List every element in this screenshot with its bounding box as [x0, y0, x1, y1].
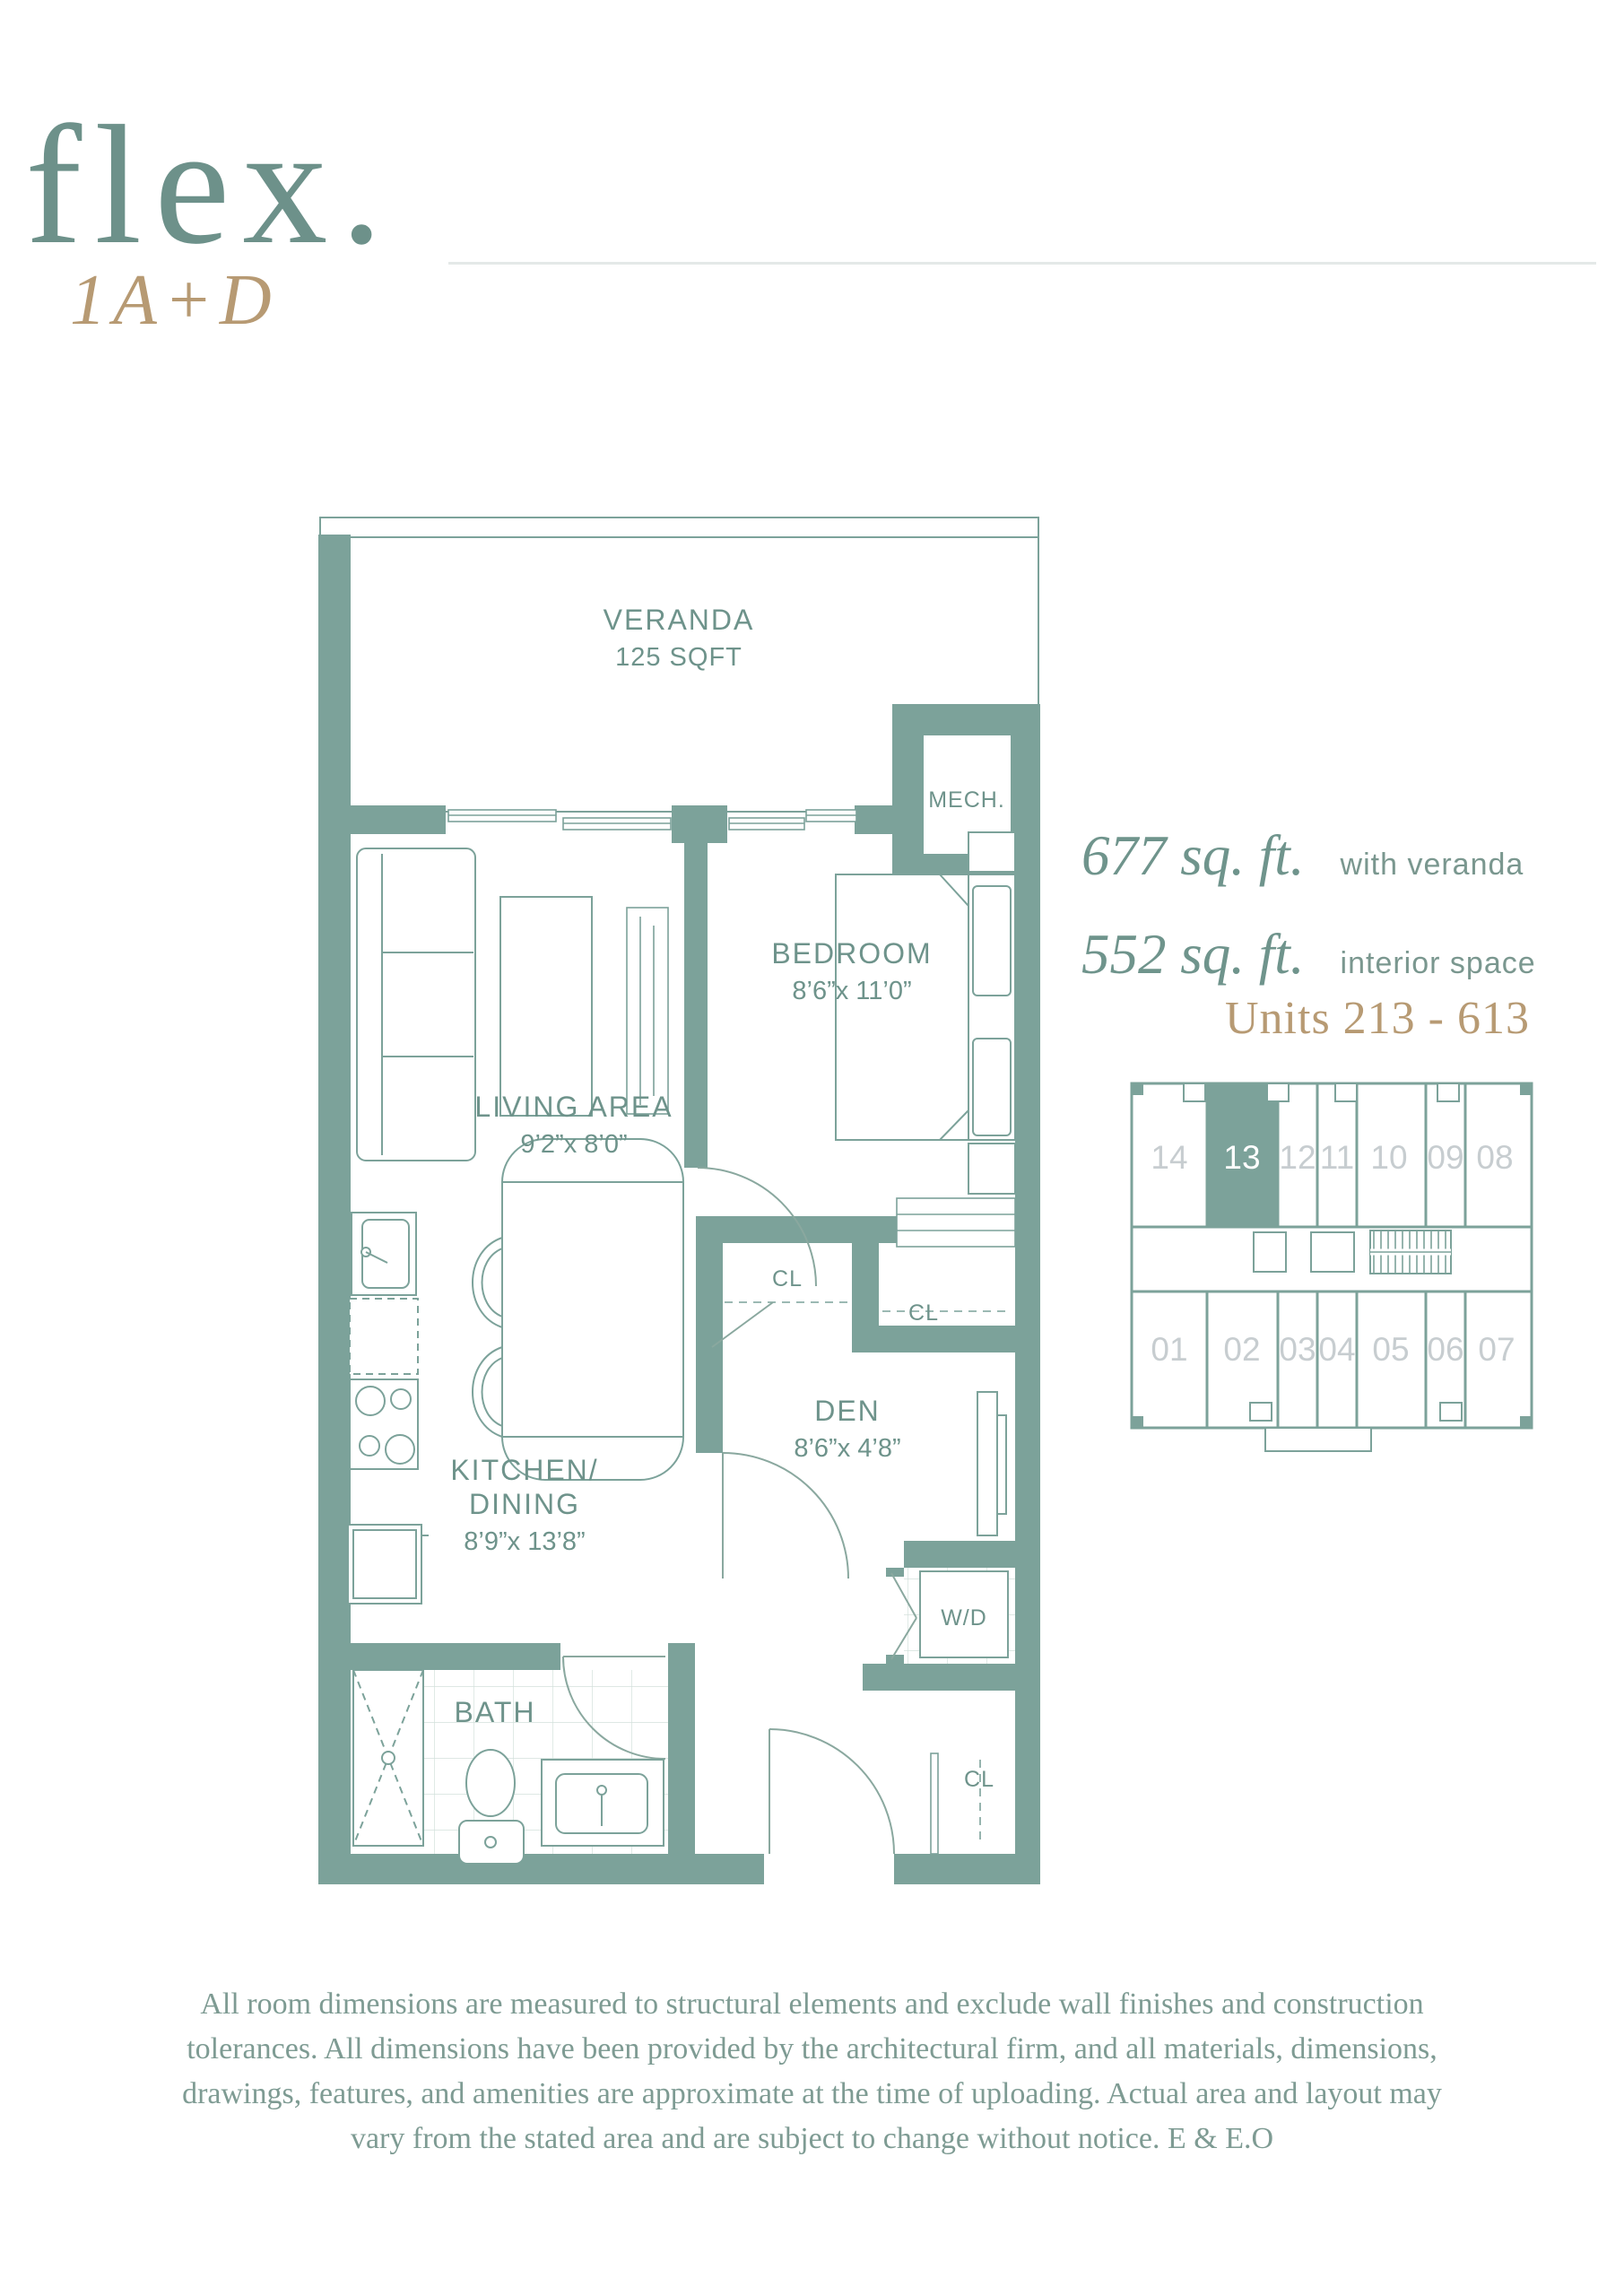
closet3-label: CL [964, 1767, 994, 1792]
svg-text:DEN: DEN [814, 1395, 881, 1427]
svg-text:9’2”x 8’0”: 9’2”x 8’0” [520, 1130, 627, 1159]
disclaimer-line-2: tolerances. All dimensions have been pro… [90, 2027, 1534, 2072]
vanity-sink [542, 1760, 664, 1846]
coffee-table [500, 897, 592, 1116]
kitchen-label: KITCHEN/ DINING 8’9”x 13’8” [450, 1454, 598, 1556]
nightstand-top [968, 832, 1015, 872]
mech-label: MECH. [928, 787, 1005, 813]
nightstand-bottom [968, 1144, 1015, 1194]
shower [353, 1670, 423, 1846]
entry-door-arc [769, 1729, 894, 1854]
sofa [357, 848, 475, 1161]
disclaimer: All room dimensions are measured to stru… [90, 1982, 1534, 2161]
bath-label: BATH [455, 1696, 536, 1728]
keyplan-unit-09: 09 [1427, 1139, 1463, 1176]
disclaimer-line-4: vary from the stated area and are subjec… [90, 2117, 1534, 2161]
keyplan-unit-08: 08 [1476, 1139, 1513, 1176]
elevator-1 [1254, 1232, 1286, 1272]
bedroom-sliding-door [627, 908, 668, 1114]
dining-chairs [473, 1238, 502, 1437]
svg-text:LIVING AREA: LIVING AREA [474, 1091, 673, 1123]
den-label: DEN 8’6”x 4’8” [794, 1395, 900, 1463]
bedroom-closet [897, 1198, 1015, 1247]
keyplan-unit-05: 05 [1372, 1331, 1409, 1368]
veranda-label: VERANDA 125 SQFT [604, 604, 755, 672]
window-band [448, 810, 856, 830]
area-interior-label: interior space [1341, 946, 1536, 981]
area-with-veranda-label: with veranda [1341, 848, 1524, 883]
svg-text:KITCHEN/: KITCHEN/ [450, 1454, 598, 1486]
kitchen-counter [350, 1299, 418, 1374]
cooktop [350, 1379, 418, 1469]
keyplan-unit-01: 01 [1151, 1331, 1187, 1368]
keyplan-unit-14: 14 [1151, 1139, 1187, 1176]
fridge [348, 1525, 429, 1604]
svg-text:8’6”x 11’0”: 8’6”x 11’0” [792, 977, 911, 1005]
closet2-label: CL [908, 1300, 939, 1326]
den-door-arc [723, 1453, 848, 1578]
plan-code: 1A+D [70, 260, 279, 342]
disclaimer-line-1: All room dimensions are measured to stru… [90, 1982, 1534, 2027]
dining-table [502, 1139, 683, 1480]
elevator-2 [1311, 1232, 1354, 1272]
area-interior: 552 sq. ft. interior space [1081, 922, 1536, 987]
keyplan-unit-11: 11 [1320, 1139, 1354, 1176]
bed [836, 874, 1015, 1140]
keyplan-unit-13: 13 [1223, 1139, 1260, 1176]
keyplan-unit-02: 02 [1223, 1331, 1260, 1368]
brand-logo: flex. [25, 100, 395, 271]
area-with-veranda: 677 sq. ft. with veranda [1081, 823, 1524, 889]
den-desk [977, 1392, 1006, 1535]
disclaimer-line-3: drawings, features, and amenities are ap… [90, 2072, 1534, 2117]
keyplan-unit-07: 07 [1478, 1331, 1515, 1368]
keyplan-unit-06: 06 [1427, 1331, 1463, 1368]
svg-text:BEDROOM: BEDROOM [771, 937, 932, 970]
header-rule [448, 262, 1596, 265]
area-with-veranda-value: 677 sq. ft. [1081, 823, 1305, 889]
svg-text:DINING: DINING [469, 1488, 580, 1520]
svg-text:125 SQFT: 125 SQFT [615, 643, 743, 672]
brochure-page: flex. 1A+D 677 sq. ft. with veranda 552 … [0, 0, 1624, 2296]
keyplan-unit-10: 10 [1370, 1139, 1407, 1176]
key-plan: 14 13 12 11 10 09 08 01 02 03 04 05 06 0… [1116, 1067, 1619, 1462]
floor-plan: VERANDA 125 SQFT MECH. BEDROOM 8’6”x 11’… [305, 502, 1067, 1919]
svg-text:8’9”x 13’8”: 8’9”x 13’8” [464, 1527, 585, 1556]
units-range: Units 213 - 613 [1225, 992, 1530, 1045]
keyplan-unit-04: 04 [1318, 1331, 1355, 1368]
keyplan-unit-03: 03 [1279, 1331, 1316, 1368]
keyplan-unit-12: 12 [1279, 1139, 1316, 1176]
svg-text:VERANDA: VERANDA [604, 604, 755, 636]
kitchen-sink [352, 1213, 416, 1295]
closet1-label: CL [772, 1266, 803, 1291]
entry-closet-divider [931, 1753, 938, 1854]
wd-label: W/D [941, 1605, 987, 1631]
svg-text:8’6”x 4’8”: 8’6”x 4’8” [794, 1434, 900, 1463]
area-interior-value: 552 sq. ft. [1081, 922, 1305, 987]
